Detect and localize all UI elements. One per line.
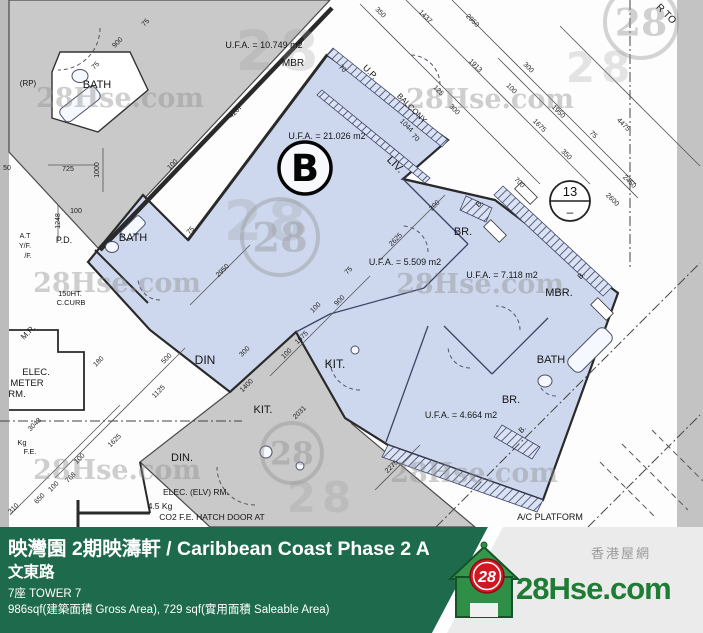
right-edge-strip [677,0,703,527]
wm-text: 28Hse.com [36,83,204,114]
left-edge-strip [0,0,9,527]
unit-b-marker: B [279,142,331,194]
house-door [470,603,498,617]
plan-label: P.D. [56,235,72,245]
grid-bubble-number: 13 [563,184,577,199]
plan-dim: 50 [3,165,11,172]
plan-dim: 1248 [55,213,62,229]
plan-label: BR. [454,226,472,238]
plan-label: KIT. [325,357,346,371]
28hse-logo-text[interactable]: 28Hse.com [516,571,671,607]
plan-label: BR. [502,394,520,406]
plan-label: F.E. [24,447,37,456]
floorplan-drawing: 28Hse.com28Hse.com28Hse.com28Hse.com28Hs… [0,0,703,527]
wm-text: 28Hse.com [390,458,558,489]
plan-label: /F. [24,253,31,260]
plan-label: DIN. [171,452,193,464]
plan-label: BATH [537,354,566,366]
plan-label: RM. [8,389,25,400]
floorplan-listing-image[interactable]: 28Hse.com28Hse.com28Hse.com28Hse.com28Hs… [0,0,703,633]
wm-block: 28 [566,43,636,92]
plan-label: Kg [17,438,26,447]
28hse-tagline: 香港屋網 [591,543,651,562]
badge-28-text: 28 [477,569,496,586]
plan-label: ELEC. [22,367,49,378]
plan-label: A.T [20,233,32,240]
plan-label: C.CURB [57,298,86,307]
plan-label: 150HT. [58,289,82,298]
listing-tower: 7座 TOWER 7 [8,585,81,601]
plan-dim: 1000 [94,162,101,178]
grid-bubble: 13 – [550,181,590,221]
plan-label: BATH [119,232,148,244]
plan-label: U.F.A. = 21.026 m2 [288,131,365,141]
plan-label: Y/F. [19,243,31,250]
plan-label: U.F.A. = 4.664 m2 [425,410,497,420]
plan-label: (RP) [20,79,37,88]
plan-label: 4.5 Kg [148,501,173,511]
sink-icon [351,346,359,354]
toilet-icon [106,242,119,253]
listing-title: 映灣園 2期映濤軒 / Caribbean Coast Phase 2 Al [8,532,429,561]
wm-block: 28 [236,19,325,83]
wm-block: 28 [224,189,313,253]
listing-area: 986sqf(建築面積 Gross Area), 729 sqf(實用面積 Sa… [8,601,329,617]
plan-label: U.F.A. = 10.749 m2 [225,40,302,50]
plan-label: U.F.A. = 5.509 m2 [369,257,441,267]
plan-label: KIT. [254,404,273,416]
wm-block: 28 [287,473,357,522]
plan-label: MBR [282,58,304,69]
plan-label: DIN [195,353,216,367]
plan-dim: 725 [62,166,74,173]
wm-28: 28 [270,435,314,472]
plan-dim: 100 [70,208,82,215]
plan-label: U.F.A. = 7.118 m2 [466,270,538,280]
plan-label: A/C PLATFORM [517,512,583,522]
toilet-icon [538,375,552,387]
unit-b-letter: B [291,147,319,190]
listing-street: 文東路 [8,560,55,582]
plan-label: METER [10,378,43,389]
plan-label: CO2 F.E. HATCH DOOR AT [159,512,264,522]
grid-bubble-dash: – [567,205,574,219]
plan-label: ELEC. (ELV) RM. [163,487,229,497]
listing-info-bar: 28 映灣園 2期映濤軒 / Caribbean Coast Phase 2 A… [0,527,703,633]
plan-label: MBR. [545,287,573,299]
plan-label: BATH [83,79,112,91]
